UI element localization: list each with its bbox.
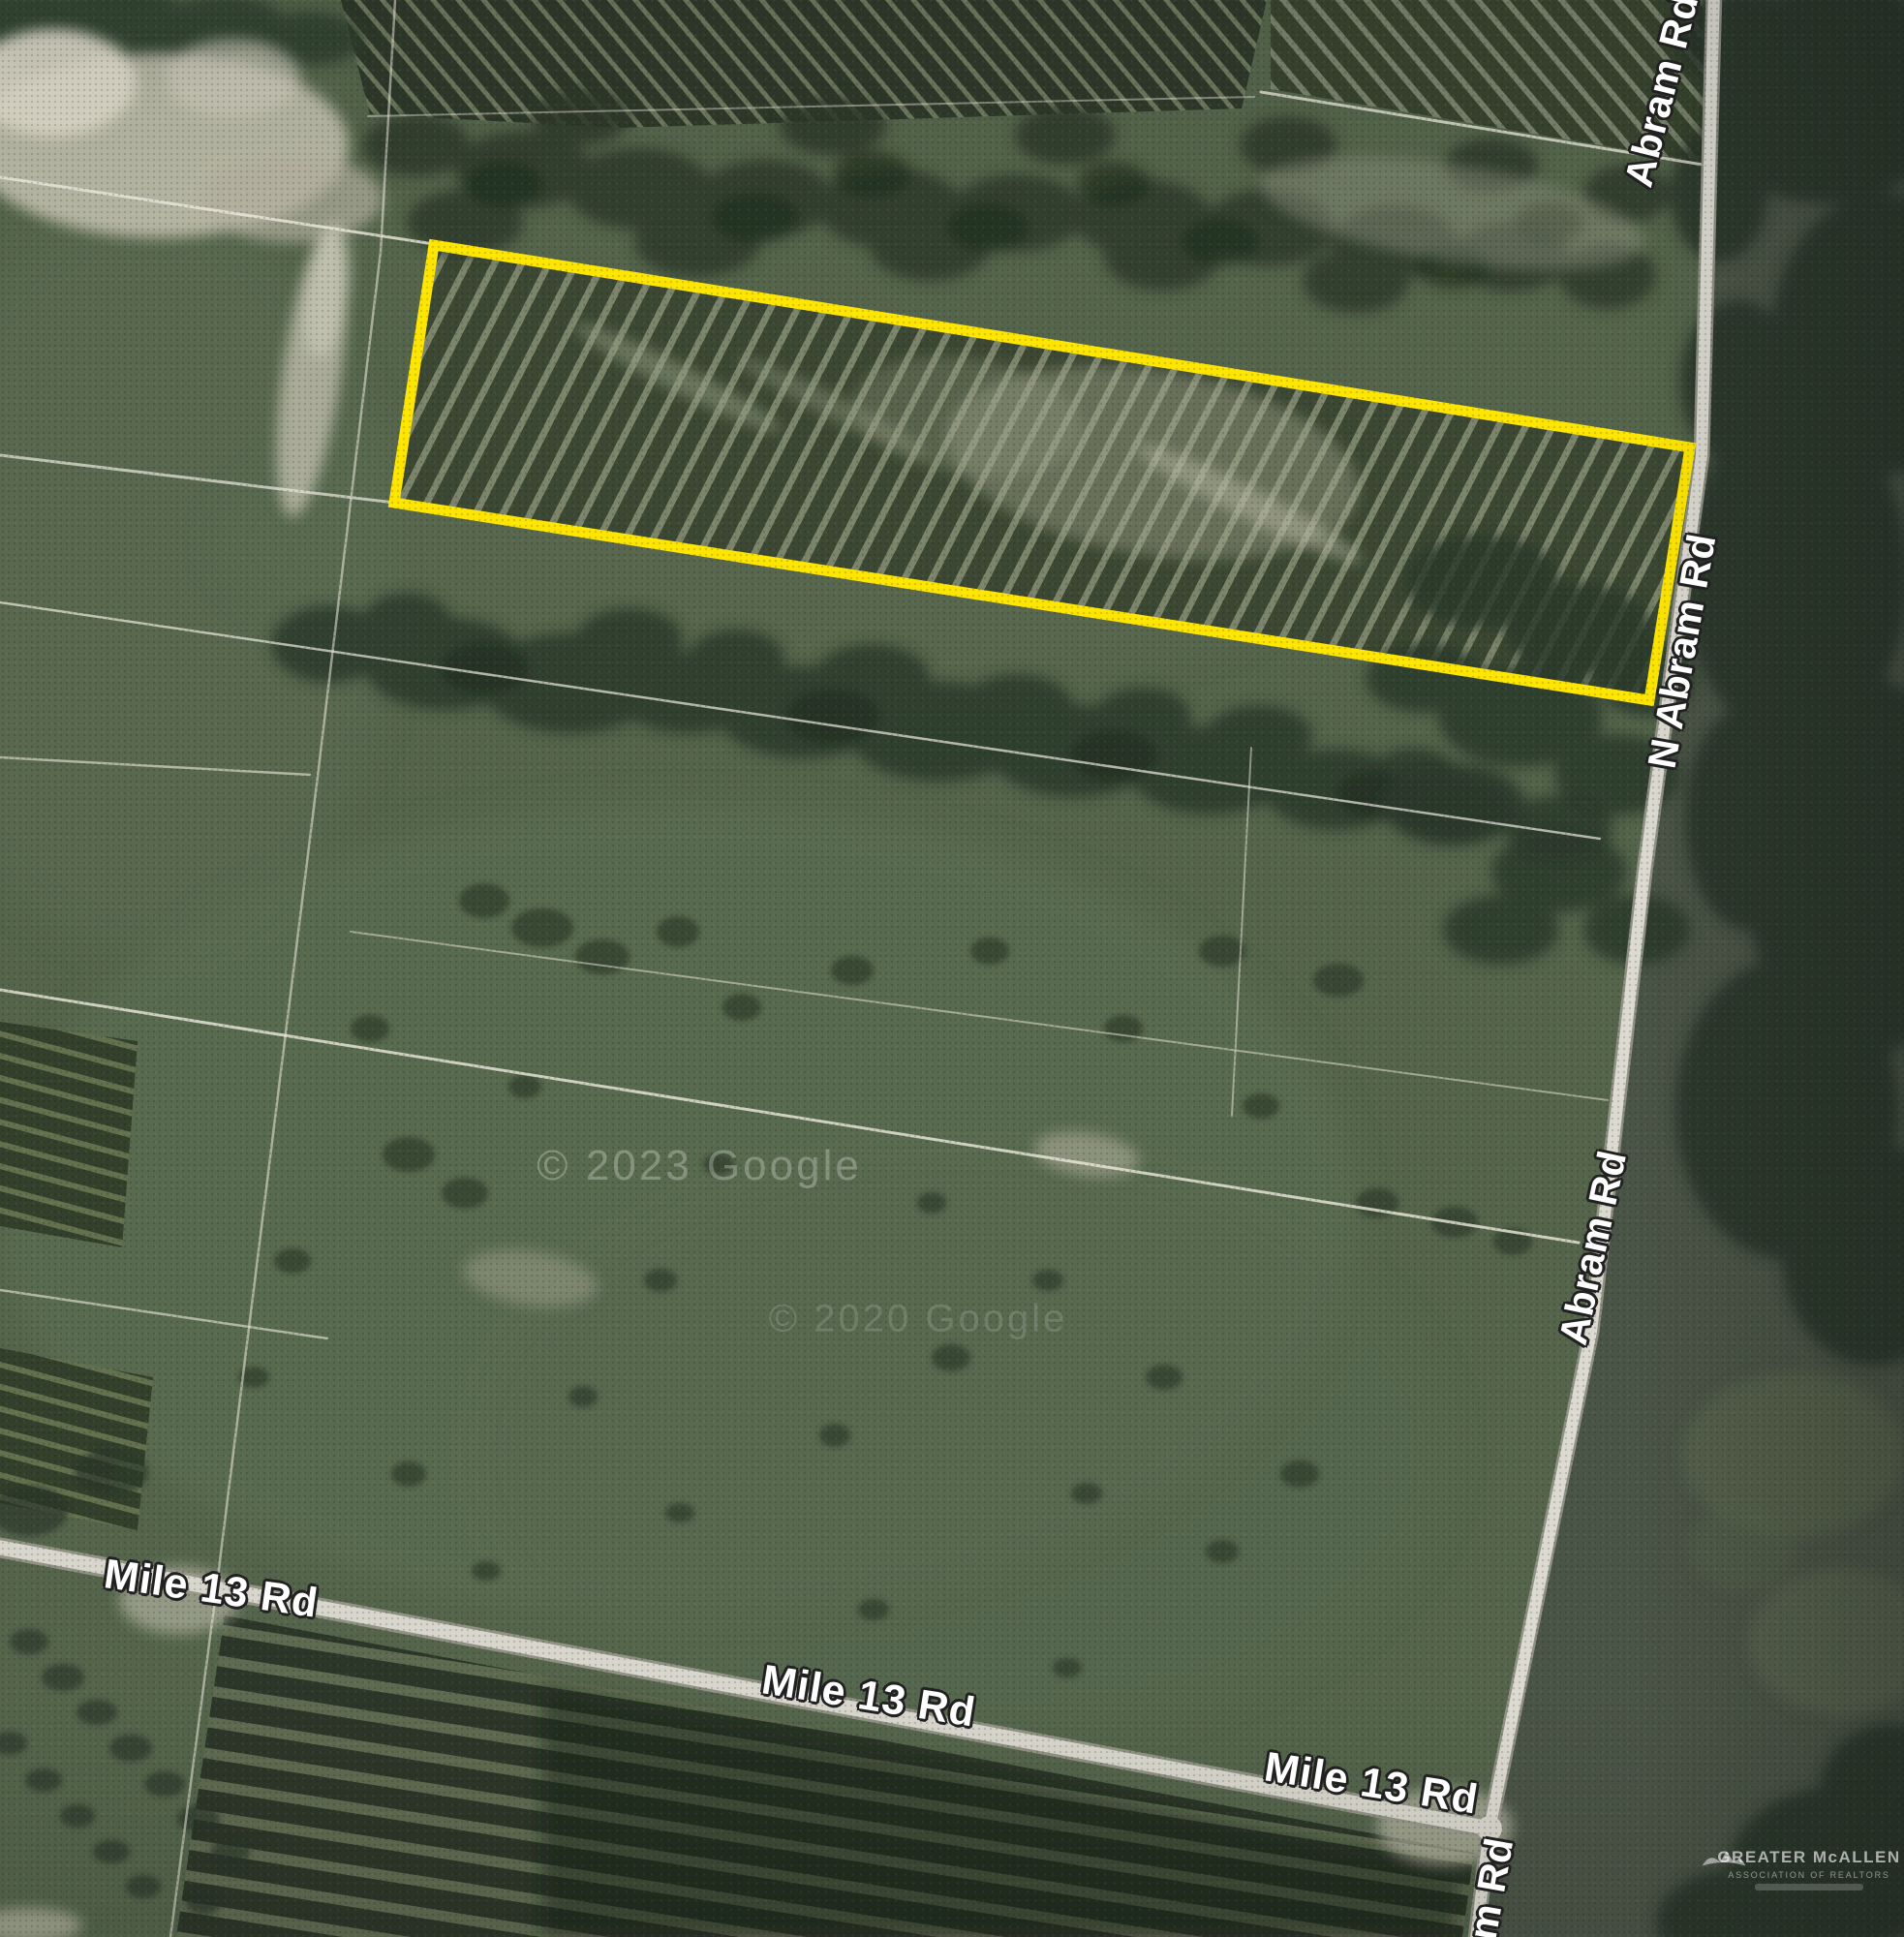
greater-mcallen-logo: GREATER McALLEN ASSOCIATION OF REALTORS — [1697, 1846, 1904, 1891]
greater-mcallen-logo-icon — [1697, 1846, 1751, 1871]
map-screenshot: Abram Rd N Abram Rd Abram Rd Mile 13 Rd … — [0, 0, 1904, 1937]
satellite-imagery — [0, 0, 1904, 1937]
google-watermark-2023: © 2023 Google — [537, 1142, 862, 1190]
greater-mcallen-logo-subtext: ASSOCIATION OF REALTORS — [1697, 1870, 1904, 1880]
orchard-left-mid — [0, 1022, 138, 1247]
greater-mcallen-logo-fine-print — [1755, 1884, 1863, 1891]
google-watermark-2020: © 2020 Google — [769, 1298, 1068, 1341]
